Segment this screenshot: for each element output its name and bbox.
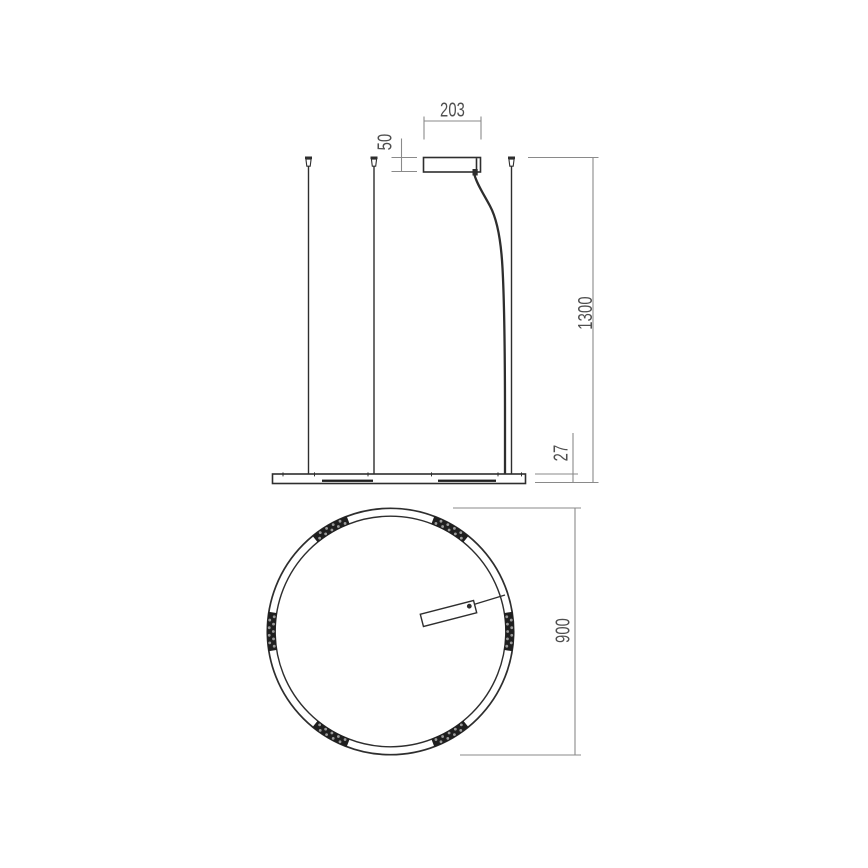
power-cord bbox=[475, 175, 506, 474]
led-dot bbox=[272, 637, 275, 640]
led-dot bbox=[440, 740, 443, 743]
led-dot bbox=[510, 642, 513, 645]
led-dot bbox=[319, 531, 322, 534]
led-dot bbox=[332, 737, 335, 740]
led-dot bbox=[319, 729, 322, 732]
led-dot bbox=[273, 615, 276, 618]
led-dot bbox=[510, 634, 513, 637]
canopy-box bbox=[424, 158, 481, 173]
led-cluster bbox=[431, 721, 468, 748]
led-dot bbox=[325, 733, 328, 736]
led-dot bbox=[324, 728, 327, 731]
led-dot bbox=[325, 527, 328, 530]
plan-view: 900 bbox=[267, 508, 581, 755]
led-dot bbox=[510, 626, 513, 629]
led-dot bbox=[337, 525, 340, 528]
led-dot bbox=[331, 529, 334, 532]
led-dot bbox=[344, 738, 347, 741]
led-dot bbox=[446, 737, 449, 740]
led-strip-side bbox=[438, 480, 496, 482]
cord-connector bbox=[473, 169, 478, 176]
led-dot bbox=[459, 729, 462, 732]
led-dot bbox=[332, 523, 335, 526]
dim-label-canopy-height: 50 bbox=[373, 134, 396, 151]
led-dot bbox=[435, 738, 438, 741]
led-cluster bbox=[504, 612, 514, 652]
led-dot bbox=[441, 735, 444, 738]
led-dot bbox=[459, 531, 462, 534]
dim-label-drop: 1300 bbox=[574, 296, 597, 329]
drawing-svg: 203 50 1300 27 bbox=[0, 0, 868, 868]
wire-top-fitting-body bbox=[371, 159, 376, 166]
ring-side-profile bbox=[273, 474, 526, 484]
tag-leader-line bbox=[471, 595, 506, 606]
led-dot bbox=[454, 532, 457, 535]
led-dot bbox=[506, 637, 509, 640]
led-strip-side bbox=[322, 480, 373, 482]
ring-outer-circle bbox=[267, 508, 513, 754]
led-dot bbox=[453, 527, 456, 530]
side-view: 203 50 1300 27 bbox=[273, 98, 599, 483]
led-dot bbox=[273, 645, 276, 648]
led-dot bbox=[324, 532, 327, 535]
led-dot bbox=[331, 732, 334, 735]
led-dot bbox=[435, 522, 438, 525]
tag-pivot-dot bbox=[467, 604, 472, 609]
suspension-wire-middle bbox=[371, 157, 378, 475]
led-dot bbox=[448, 732, 451, 735]
led-dot bbox=[453, 733, 456, 736]
wire-top-fitting-body bbox=[306, 159, 311, 166]
led-dot bbox=[268, 634, 271, 637]
led-dot bbox=[510, 619, 513, 622]
dim-ring-diameter: 900 bbox=[453, 508, 581, 755]
led-cluster bbox=[312, 721, 349, 748]
dim-label-canopy-width: 203 bbox=[440, 98, 465, 121]
dim-label-profile-height: 27 bbox=[549, 445, 572, 462]
led-dot bbox=[460, 537, 463, 540]
led-dot bbox=[505, 645, 508, 648]
led-dot bbox=[460, 723, 463, 726]
wire-top-fitting-body bbox=[509, 159, 514, 166]
led-dot bbox=[272, 623, 275, 626]
led-dot bbox=[454, 728, 457, 731]
led-dot bbox=[446, 523, 449, 526]
dim-drop-height: 1300 bbox=[528, 158, 599, 483]
led-dot bbox=[268, 642, 271, 645]
led-cluster bbox=[267, 612, 277, 652]
led-dot bbox=[318, 537, 321, 540]
led-dot bbox=[272, 630, 275, 633]
led-cluster bbox=[431, 516, 468, 543]
led-dot bbox=[505, 615, 508, 618]
led-dot bbox=[337, 735, 340, 738]
led-dot bbox=[440, 520, 443, 523]
led-dot bbox=[506, 623, 509, 626]
led-dot bbox=[441, 525, 444, 528]
led-clusters bbox=[267, 516, 514, 747]
led-dot bbox=[339, 520, 342, 523]
led-dot bbox=[344, 522, 347, 525]
led-cluster bbox=[312, 516, 349, 543]
technical-drawing-canvas: 203 50 1300 27 bbox=[0, 0, 868, 868]
led-dot bbox=[268, 619, 271, 622]
led-dot bbox=[268, 626, 271, 629]
dim-label-ring-diameter: 900 bbox=[551, 618, 574, 643]
ring-inner-circle bbox=[275, 516, 506, 747]
led-dot bbox=[318, 723, 321, 726]
led-dot bbox=[448, 529, 451, 532]
led-dot bbox=[339, 740, 342, 743]
dim-canopy-width: 203 bbox=[424, 98, 481, 139]
dim-profile-height: 27 bbox=[535, 433, 578, 483]
suspension-wire-left bbox=[305, 157, 312, 475]
led-dot bbox=[506, 630, 509, 633]
suspension-wire-right bbox=[508, 157, 515, 475]
dim-canopy-height: 50 bbox=[373, 134, 417, 172]
